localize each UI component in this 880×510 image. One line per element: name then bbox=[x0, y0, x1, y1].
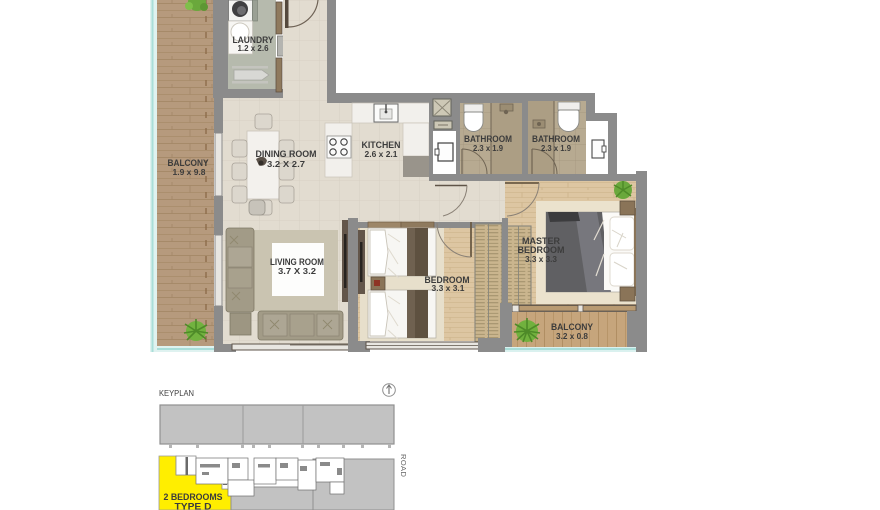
svg-text:KEYPLAN: KEYPLAN bbox=[159, 388, 194, 398]
svg-text:BALCONY: BALCONY bbox=[551, 322, 593, 332]
svg-text:3.3 x 3.3: 3.3 x 3.3 bbox=[525, 255, 558, 264]
svg-text:DINING ROOM: DINING ROOM bbox=[256, 149, 317, 159]
svg-text:3.2 x 0.8: 3.2 x 0.8 bbox=[556, 332, 589, 341]
svg-text:BATHROOM: BATHROOM bbox=[464, 134, 512, 144]
svg-text:2.3 x 1.9: 2.3 x 1.9 bbox=[473, 144, 504, 153]
svg-text:BATHROOM: BATHROOM bbox=[532, 134, 580, 144]
svg-text:LIVING ROOM: LIVING ROOM bbox=[270, 257, 324, 267]
svg-text:TYPE D: TYPE D bbox=[175, 502, 212, 510]
svg-text:KITCHEN: KITCHEN bbox=[362, 140, 401, 150]
svg-text:1.9 x 9.8: 1.9 x 9.8 bbox=[173, 168, 207, 177]
svg-text:BEDROOM: BEDROOM bbox=[518, 245, 565, 255]
svg-text:2.6 x 2.1: 2.6 x 2.1 bbox=[365, 150, 399, 159]
svg-text:3.3 x 3.1: 3.3 x 3.1 bbox=[432, 284, 466, 293]
svg-text:BALCONY: BALCONY bbox=[168, 158, 209, 168]
svg-text:3.2 X 2.7: 3.2 X 2.7 bbox=[267, 160, 306, 169]
svg-text:ROAD: ROAD bbox=[399, 454, 408, 477]
svg-text:1.2 x 2.6: 1.2 x 2.6 bbox=[238, 44, 270, 53]
svg-text:2.3 x 1.9: 2.3 x 1.9 bbox=[541, 144, 572, 153]
svg-text:3.7 X 3.2: 3.7 X 3.2 bbox=[278, 267, 317, 276]
